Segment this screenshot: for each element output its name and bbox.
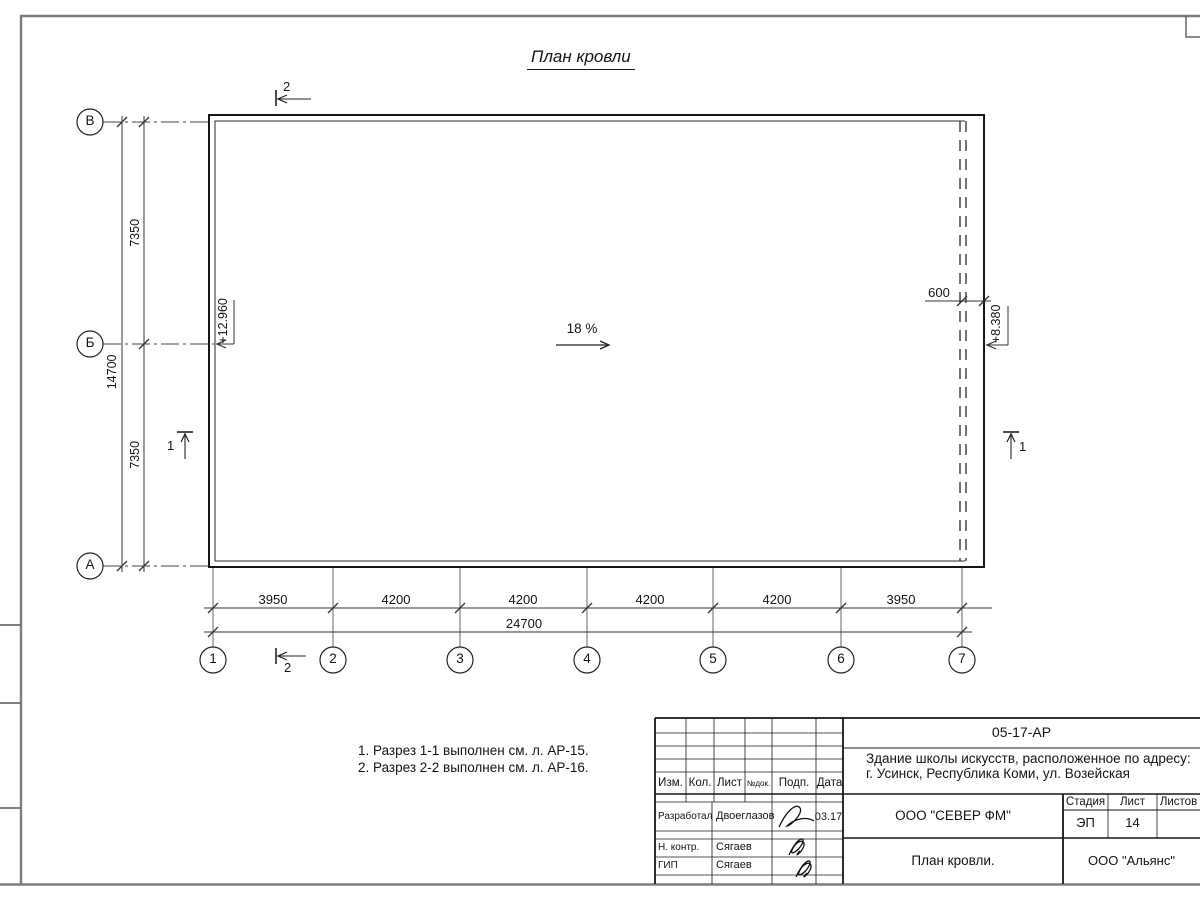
sheet-label: Лист xyxy=(1108,796,1157,809)
rev-header-kol: Кол. xyxy=(686,777,714,790)
axis-circle-5: 5 xyxy=(700,652,726,667)
dim-bottom-segment-2: 4200 xyxy=(371,593,421,607)
dim-overhang: 600 xyxy=(919,286,959,300)
staff-date-developer: 03.17 xyxy=(814,811,843,823)
frame-binding-marks xyxy=(0,625,20,808)
titleblock-sheet-title: План кровли. xyxy=(843,854,1063,869)
slope-label: 18 % xyxy=(552,322,612,337)
dim-bottom-segment-4: 4200 xyxy=(625,593,675,607)
note-line-1: 1. Разрез 1-1 выполнен см. л. АР-15. xyxy=(358,742,589,759)
note-line-2: 2. Разрез 2-2 выполнен см. л. АР-16. xyxy=(358,759,589,776)
dim-left-segment-2: 7350 xyxy=(129,425,143,485)
axis-circle-b: Б xyxy=(77,336,103,351)
staff-role-ncontrol: Н. контр. xyxy=(658,842,699,853)
roof-outline xyxy=(209,115,984,567)
dim-bottom-segment-1: 3950 xyxy=(248,593,298,607)
staff-name-developer: Двоеглазов xyxy=(716,810,774,822)
dim-bottom-total: 24700 xyxy=(494,617,554,631)
stage-value: ЭП xyxy=(1063,816,1108,830)
rev-header-list: Лист xyxy=(714,777,745,790)
titleblock-org-right: ООО "Альянс" xyxy=(1063,854,1200,868)
dim-left-total: 14700 xyxy=(106,337,120,407)
staff-role-developer: Разработал xyxy=(658,811,712,822)
axis-circle-3: 3 xyxy=(447,652,473,667)
titleblock-org-center: ООО "СЕВЕР ФМ" xyxy=(843,809,1063,824)
axis-circle-1: 1 xyxy=(200,652,226,667)
roof-plan-sheet: План кровли В Б А 1 2 3 4 5 6 7 7350 735… xyxy=(0,0,1200,900)
object-address-line-2: г. Усинск, Республика Коми, ул. Возейска… xyxy=(866,767,1191,782)
signature-ncontrol xyxy=(789,839,804,855)
rev-header-izm: Изм. xyxy=(655,777,686,790)
titleblock-object-address: Здание школы искусств, расположенное по … xyxy=(866,752,1191,782)
elevation-mark-left: +12.960 xyxy=(217,285,231,357)
staff-name-gip: Сягаев xyxy=(716,859,752,871)
axis-circle-v: В xyxy=(77,114,103,129)
rev-header-ndok: №док. xyxy=(745,780,772,789)
dim-bottom-segment-3: 4200 xyxy=(498,593,548,607)
axis-circle-2: 2 xyxy=(320,652,346,667)
frame-corner-stamp xyxy=(1186,16,1200,37)
staff-name-ncontrol: Сягаев xyxy=(716,841,752,853)
section-mark-2-top-label: 2 xyxy=(283,80,290,94)
elevation-mark-right: +8.380 xyxy=(990,291,1004,357)
axis-circle-4: 4 xyxy=(574,652,600,667)
titleblock-doc-code: 05-17-АР xyxy=(843,725,1200,740)
axis-circle-6: 6 xyxy=(828,652,854,667)
object-address-line-1: Здание школы искусств, расположенное по … xyxy=(866,752,1191,767)
stage-label: Стадия xyxy=(1063,796,1108,809)
sheet-number-value: 14 xyxy=(1108,816,1157,830)
dim-left-segment-1: 7350 xyxy=(129,203,143,263)
sheets-label: Листов xyxy=(1157,796,1200,809)
rev-header-podp: Подп. xyxy=(772,777,816,790)
axis-circle-7: 7 xyxy=(949,652,975,667)
dim-bottom-segment-5: 4200 xyxy=(752,593,802,607)
section-mark-2-bottom-label: 2 xyxy=(284,661,291,675)
notes-block: 1. Разрез 1-1 выполнен см. л. АР-15. 2. … xyxy=(358,742,589,776)
section-mark-1-right-label: 1 xyxy=(1019,440,1026,454)
page-title: План кровли xyxy=(527,48,635,70)
signature-developer xyxy=(779,806,814,827)
rev-header-data: Дата xyxy=(816,777,843,790)
signature-strokes xyxy=(779,806,814,877)
bottom-dimension-lines xyxy=(204,603,992,637)
signature-gip xyxy=(796,861,811,877)
staff-role-gip: ГИП xyxy=(658,860,678,871)
axis-circle-a: А xyxy=(77,558,103,573)
dim-bottom-segment-6: 3950 xyxy=(876,593,926,607)
section-mark-1-left-label: 1 xyxy=(167,439,174,453)
